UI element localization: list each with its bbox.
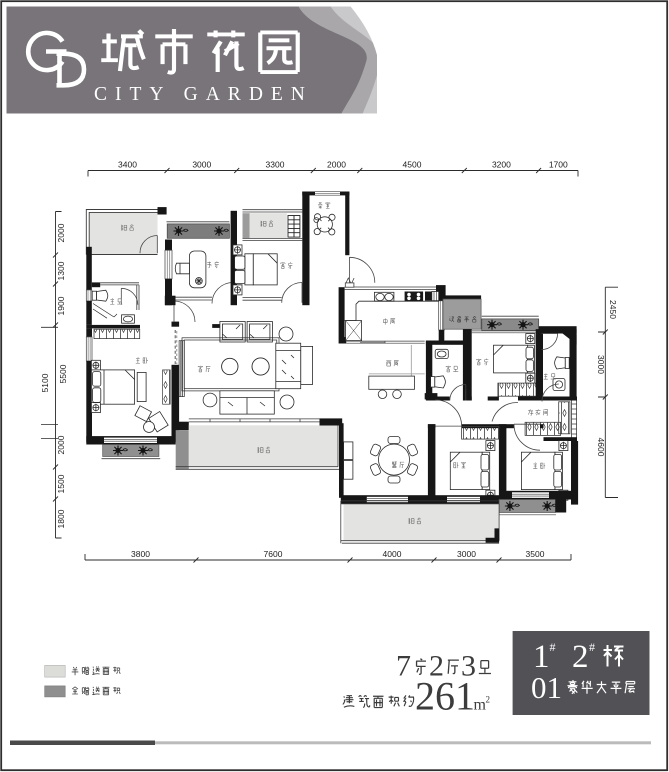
svg-text:3400: 3400 xyxy=(118,160,137,170)
svg-text:3000: 3000 xyxy=(192,160,211,170)
svg-text:1300: 1300 xyxy=(56,261,66,280)
svg-text:1900: 1900 xyxy=(56,296,66,315)
svg-text:3000: 3000 xyxy=(596,355,606,374)
svg-text:#: # xyxy=(550,640,556,654)
svg-text:3500: 3500 xyxy=(526,549,545,559)
svg-text:1700: 1700 xyxy=(549,160,568,170)
svg-text:2: 2 xyxy=(486,695,491,705)
svg-text:4000: 4000 xyxy=(383,549,402,559)
svg-text:1500: 1500 xyxy=(56,474,66,493)
svg-text:7600: 7600 xyxy=(264,549,283,559)
svg-text:4500: 4500 xyxy=(403,160,422,170)
svg-text:2: 2 xyxy=(572,639,589,675)
svg-text:2000: 2000 xyxy=(327,160,346,170)
svg-text:2000: 2000 xyxy=(56,223,66,242)
svg-text:2000: 2000 xyxy=(56,435,66,454)
svg-text:261: 261 xyxy=(415,674,475,719)
svg-text:CITY GARDEN: CITY GARDEN xyxy=(94,84,313,105)
svg-text:3000: 3000 xyxy=(457,549,476,559)
svg-text:01: 01 xyxy=(531,670,562,705)
svg-text:2450: 2450 xyxy=(608,300,618,319)
svg-text:7: 7 xyxy=(396,650,411,683)
svg-text:3800: 3800 xyxy=(131,549,150,559)
svg-text:5500: 5500 xyxy=(58,364,68,383)
svg-text:4600: 4600 xyxy=(596,438,606,457)
svg-text:5100: 5100 xyxy=(40,373,50,392)
svg-text:3200: 3200 xyxy=(492,160,511,170)
svg-text:3300: 3300 xyxy=(266,160,285,170)
svg-text:1800: 1800 xyxy=(56,509,66,528)
svg-text:#: # xyxy=(589,640,595,654)
